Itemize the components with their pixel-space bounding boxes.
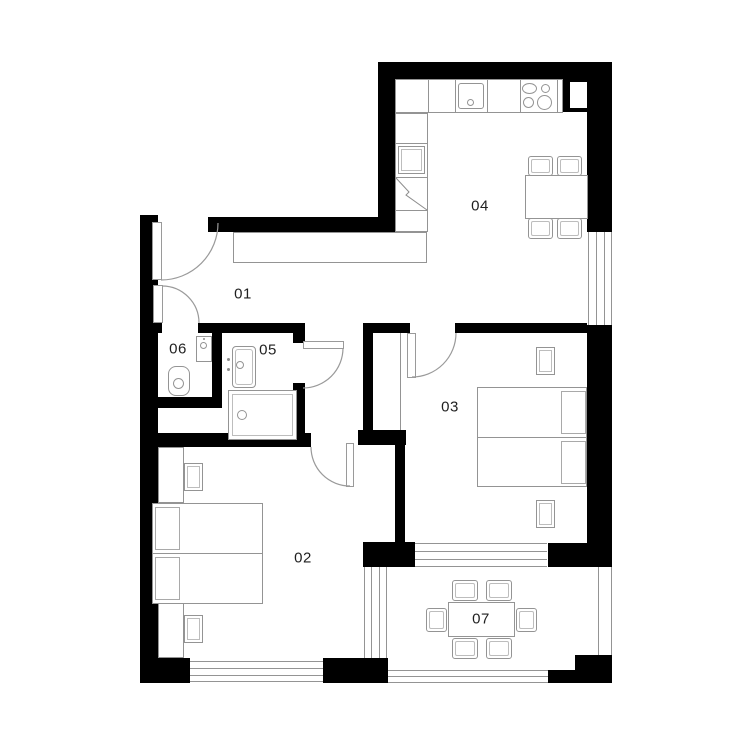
terrace-railing	[598, 567, 599, 655]
window	[379, 567, 380, 658]
cooktop-burner	[541, 84, 550, 93]
window	[415, 543, 547, 544]
bed-divider	[152, 553, 263, 554]
toilet-bowl	[173, 378, 184, 389]
window	[415, 566, 547, 567]
nightstand	[536, 347, 555, 375]
wall	[575, 655, 612, 683]
wall	[378, 62, 612, 79]
hand-sink-drain	[200, 342, 207, 349]
unit-divider	[395, 143, 428, 144]
dining-chair	[528, 156, 553, 176]
wall	[140, 658, 190, 683]
room-label-05: 05	[259, 342, 277, 359]
shower-drain	[237, 410, 247, 420]
wall	[212, 323, 222, 408]
floor-plan: 01 02 03 04 05 06 07	[0, 0, 750, 750]
terrace-chair	[486, 580, 512, 601]
window	[371, 567, 372, 658]
pillow	[155, 507, 180, 550]
window	[415, 551, 547, 552]
wall	[587, 62, 612, 232]
unit-divider	[395, 177, 428, 178]
niche-opening-line	[400, 333, 401, 430]
dining-chair	[528, 218, 553, 239]
counter-divider	[455, 79, 456, 113]
washbasin-drain	[236, 361, 244, 369]
wall	[293, 323, 305, 343]
fridge	[398, 146, 425, 174]
closet	[158, 447, 184, 503]
wall	[587, 325, 612, 543]
cooktop-burner	[537, 95, 552, 110]
unit-divider	[395, 210, 428, 211]
window	[596, 232, 597, 325]
wall	[378, 62, 395, 232]
wall	[455, 323, 587, 333]
bedroom02-door-leaf	[346, 443, 354, 487]
cooktop-burner	[522, 83, 537, 94]
terrace-railing	[388, 670, 548, 671]
window	[190, 681, 323, 682]
window	[364, 567, 365, 658]
pillow	[561, 441, 586, 484]
wall	[158, 397, 222, 408]
sink-drain	[467, 99, 474, 106]
counter-divider	[557, 79, 558, 113]
bedroom03-door-leaf	[407, 333, 416, 378]
room-label-06: 06	[169, 341, 187, 358]
terrace-railing	[388, 682, 548, 683]
window	[190, 668, 323, 669]
window	[604, 232, 605, 325]
pillow	[155, 557, 180, 600]
terrace-railing	[611, 567, 612, 655]
room-label-01: 01	[234, 286, 252, 303]
nightstand	[184, 615, 203, 643]
wall	[363, 542, 415, 567]
terrace-chair	[516, 608, 537, 632]
wall	[548, 670, 575, 683]
faucet-dot	[227, 358, 230, 361]
wall	[363, 323, 373, 435]
closet	[158, 603, 184, 658]
wc-door-leaf	[153, 285, 163, 323]
wardrobe	[233, 232, 427, 263]
wall	[323, 658, 388, 683]
faucet-dot	[227, 368, 230, 371]
terrace-railing	[388, 676, 548, 677]
terrace-chair	[452, 638, 478, 659]
room-label-02: 02	[294, 550, 312, 567]
nightstand	[536, 500, 555, 528]
window	[588, 232, 589, 325]
window	[386, 567, 387, 658]
counter-divider	[428, 79, 429, 113]
terrace-chair	[486, 638, 512, 659]
dining-chair	[557, 218, 582, 239]
room-label-03: 03	[441, 399, 459, 416]
pillow	[561, 391, 586, 434]
bed-divider	[477, 437, 587, 438]
nightstand	[184, 463, 203, 491]
shaft-opening	[570, 82, 587, 108]
wall	[548, 543, 612, 567]
window	[611, 232, 612, 325]
wall	[140, 323, 162, 333]
window	[190, 675, 323, 676]
bathroom-door-leaf	[303, 341, 344, 349]
room-label-04: 04	[471, 198, 489, 215]
terrace-chair	[426, 608, 447, 632]
counter-divider	[487, 79, 488, 113]
dining-chair	[557, 156, 582, 176]
entrance-door-leaf	[152, 222, 162, 280]
dining-table	[525, 175, 588, 219]
faucet-dot	[203, 338, 205, 340]
terrace-chair	[452, 580, 478, 601]
window	[190, 661, 323, 662]
room-label-07: 07	[472, 611, 490, 628]
wall	[208, 217, 393, 232]
window	[415, 559, 547, 560]
wall	[395, 443, 405, 544]
counter-divider	[520, 79, 521, 113]
cooktop-burner	[523, 97, 534, 108]
door-arcs	[0, 0, 750, 750]
